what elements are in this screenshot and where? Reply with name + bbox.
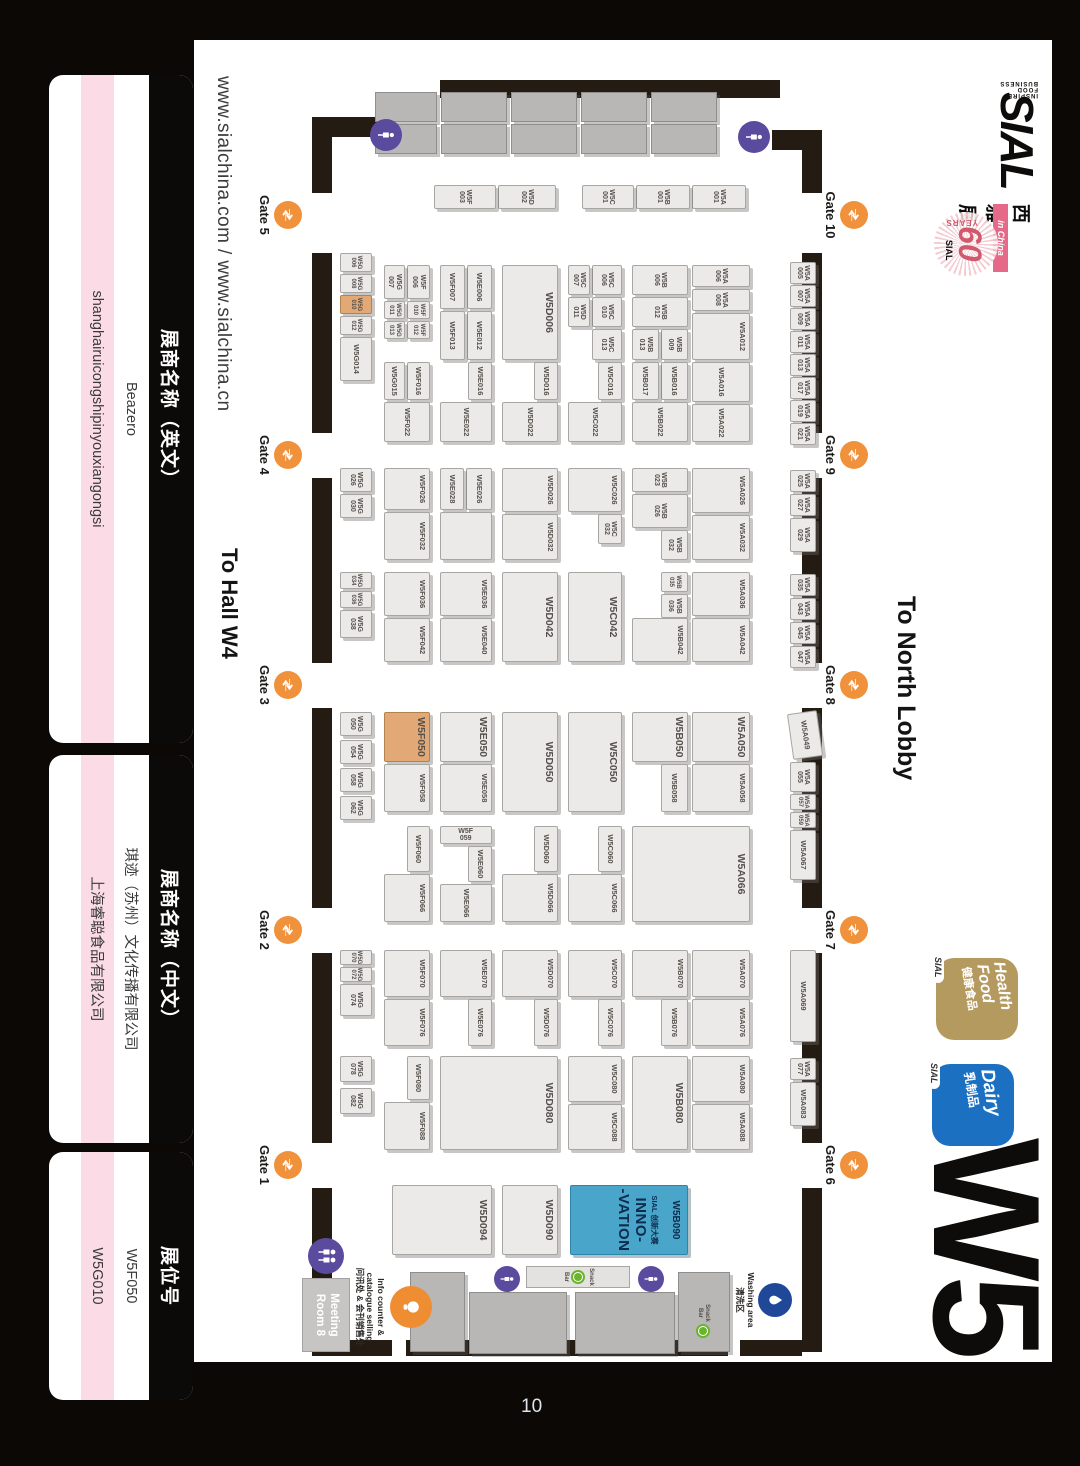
booth-label: W5C 013	[600, 337, 615, 353]
booth-W5D080: W5D080	[440, 1056, 558, 1150]
booth-W5D090: W5D090	[502, 1185, 558, 1255]
gate-label: Gate 9	[822, 420, 838, 490]
booth-W5C006: W5C 006	[592, 265, 622, 295]
toilet-icon	[494, 1266, 520, 1292]
booth-W5A005: W5A 005	[790, 262, 816, 284]
booth-W5F058: W5F058	[384, 764, 430, 812]
booth-label: W5B 013	[638, 337, 653, 353]
booth-W5G013: W5G 013	[384, 321, 405, 339]
booth-label: W5G014	[352, 344, 360, 374]
hall-wall	[312, 953, 332, 1143]
booth-W5F007: W5F007	[440, 265, 465, 309]
booth-W5G006: W5G 006	[340, 253, 372, 272]
booth-label: W5C070	[610, 959, 621, 988]
booth-label: W5G 034	[350, 574, 363, 588]
booth-W5A088: W5A088	[692, 1104, 750, 1150]
booth-label: W5G 058	[349, 772, 364, 788]
gate-swap-icon	[274, 1151, 302, 1179]
booth-label: W5D026	[546, 475, 557, 504]
booth-W5D066: W5D066	[502, 874, 558, 922]
booth-label: W5B017	[642, 366, 650, 395]
booth-label: W5G 007	[387, 274, 402, 290]
booth-W5G050: W5G 050	[340, 712, 372, 736]
booth-label: W5B042	[676, 625, 687, 654]
booth-W5F006: W5F 006	[407, 265, 430, 299]
booth-label: W5A 027	[796, 497, 811, 513]
table-block-name-en: 展商名称（英文） Beazero shanghairuicongshipinyo…	[49, 75, 193, 743]
gate-swap-icon	[274, 201, 302, 229]
booth-label: W5D050	[543, 742, 557, 783]
booth-label: W5C060	[606, 834, 614, 863]
gate-label: Gate 5	[256, 180, 272, 250]
gate-label: Gate 10	[822, 180, 838, 250]
service-block	[651, 124, 717, 154]
booth-label: W5E006	[476, 273, 484, 302]
booth-W5B016: W5B016	[661, 362, 688, 400]
washing-area-label: Washing area 清洗区	[735, 1250, 756, 1350]
hall-wall	[312, 708, 332, 908]
booth-label: W5A070	[738, 959, 749, 988]
booth-label: W5F050	[415, 717, 429, 757]
booth-W5C001: W5C 001	[582, 185, 634, 209]
meeting-room-label: Meeting Room 8	[312, 1279, 340, 1351]
booth-W5G007: W5G 007	[384, 265, 405, 299]
service-block	[375, 92, 437, 122]
booth-label: W5B076	[671, 1008, 679, 1037]
booth-label: W5G 038	[349, 616, 364, 632]
booth-label: W5F 006	[411, 275, 426, 290]
booth-label: W5C088	[610, 1112, 621, 1141]
booth-label: W5D 002	[520, 189, 535, 205]
booth-label: W5F 010	[412, 304, 425, 317]
booth-W5E006: W5E006	[467, 265, 492, 309]
booth-label: W5A 001	[712, 189, 727, 205]
gate-swap-icon	[840, 441, 868, 469]
booth-W5D002: W5D 002	[498, 185, 556, 209]
column-header: 展商名称（中文）	[149, 755, 193, 1143]
booth-W5E060: W5E060	[468, 846, 492, 882]
booth-W5C070: W5C070	[568, 950, 622, 997]
booth-label: W5D070	[546, 959, 557, 988]
booth-label: W5B 026	[653, 503, 668, 519]
booth-W5F070: W5F070	[384, 950, 430, 997]
snack-bar: Snack Bar	[526, 1266, 630, 1288]
booth-label: W5G 074	[349, 992, 364, 1008]
booth-W5A045: W5A 045	[790, 622, 816, 644]
booth-label: W5A026	[738, 476, 749, 505]
booth-label: W5C016	[606, 366, 614, 395]
gate-label: Gate 4	[256, 420, 272, 490]
booth-W5G058: W5G 058	[340, 768, 372, 792]
booth-W5A009: W5A 009	[790, 308, 816, 330]
booth-W5F080: W5F080	[407, 1056, 430, 1100]
booth-label: W5E040	[480, 626, 491, 655]
booth-W5A067: W5A067	[790, 830, 816, 880]
booth-W5F076: W5F076	[384, 999, 430, 1046]
booth-label: W5B 032	[667, 537, 682, 553]
booth-label: W5G 078	[349, 1061, 364, 1077]
booth-W5A049: W5A049	[787, 710, 823, 760]
booth-label: W5B050	[673, 717, 687, 758]
booth-label: W5A067	[799, 840, 807, 869]
booth-W5E058: W5E058	[440, 764, 492, 812]
booth-W5A055: W5A 055	[790, 762, 816, 792]
gate-label: Gate 2	[256, 895, 272, 965]
booth-W5C032: W5C 032	[598, 514, 622, 544]
booth-label: W5E022	[462, 408, 470, 437]
booth-label: W5A 029	[796, 527, 811, 543]
booth-label: W5D032	[546, 522, 557, 551]
hall-wall	[802, 1188, 822, 1352]
booth-W5E040: W5E040	[440, 618, 492, 662]
booth-label: W5E028	[448, 475, 456, 504]
table-row-highlight: shanghairuicongshipinyouxiangongsi	[81, 75, 114, 743]
booth-label: W5B016	[671, 366, 679, 395]
service-block	[581, 92, 647, 122]
booth-W5C022: W5C022	[568, 402, 622, 442]
gate-label: Gate 6	[822, 1130, 838, 1200]
booth-W5A042: W5A042	[692, 618, 750, 662]
toilet-icon	[638, 1266, 664, 1292]
booth-label: W5G 062	[349, 800, 364, 816]
booth-W5F066: W5F066	[384, 874, 430, 922]
booth-W5D042: W5D042	[502, 572, 558, 662]
booth-label: W5C066	[610, 883, 621, 912]
booth-W5F003: W5F 003	[434, 185, 496, 209]
booth-W5A059: W5A 059	[790, 812, 816, 828]
booth-W5G012: W5G 012	[340, 316, 372, 335]
booth-label: W5B 012	[653, 304, 668, 320]
booth-W5C042: W5C042	[568, 572, 622, 662]
booth-label: W5A050	[735, 717, 749, 758]
booth-W5A021: W5A 021	[790, 423, 816, 445]
booth-W5C088: W5C088	[568, 1104, 622, 1150]
booth-W5C080: W5C080	[568, 1056, 622, 1102]
table-row-highlight: 上海睿聪食品有限公司	[81, 755, 114, 1143]
booth-label: W5B 023	[653, 472, 668, 488]
booth-unlabeled	[440, 512, 492, 560]
booth-label: W5G 072	[350, 968, 363, 982]
booth-label: W5A069	[799, 981, 807, 1010]
booth-W5A080: W5A080	[692, 1056, 750, 1102]
booth-W5G034: W5G 034	[340, 572, 372, 589]
booth-W5F060: W5F060	[407, 826, 430, 872]
snack-bar-2: SnackBar	[682, 1296, 724, 1346]
booth-label: W5D076	[542, 1008, 550, 1037]
booth-W5A027: W5A 027	[790, 494, 816, 516]
booth-W5B022: W5B022	[632, 402, 688, 442]
page-number: 10	[521, 1396, 542, 1418]
booth-W5A025: W5A 025	[790, 470, 816, 492]
booth-label: W5E060	[476, 850, 484, 879]
booth-label: W5B022	[656, 407, 664, 436]
hall-wall	[312, 478, 332, 663]
booth-label: W5G 036	[350, 593, 363, 607]
booth-W5G070: W5G 070	[340, 950, 372, 965]
hall-wall	[772, 130, 822, 150]
booth-W5G010: W5G 010	[340, 295, 372, 314]
booth-W5G074: W5G 074	[340, 984, 372, 1016]
booth-W5F042: W5F042	[384, 618, 430, 662]
booth-label: W5A 025	[796, 473, 811, 489]
booth-label: W5F066	[418, 884, 429, 912]
booth-W5A017: W5A 017	[790, 377, 816, 399]
table-row-highlight: W5G010	[81, 1152, 114, 1400]
gate-swap-icon	[840, 201, 868, 229]
booth-label: W5A088	[738, 1112, 749, 1141]
booth-label: W5G 050	[349, 716, 364, 732]
table-block-booth-no: 展位号 W5F050 W5G010	[49, 1152, 193, 1400]
booth-W5A016: W5A016	[692, 362, 750, 402]
booth-W5B023: W5B 023	[632, 468, 688, 492]
booth-W5A070: W5A070	[692, 950, 750, 997]
booth-label: W5C026	[610, 475, 621, 504]
gate-swap-icon	[274, 916, 302, 944]
booth-label: W5F022	[403, 408, 411, 436]
column-header: 展商名称（英文）	[149, 75, 193, 743]
booth-W5C010: W5C 010	[592, 297, 622, 327]
booth-label: W5B 009	[667, 337, 682, 353]
gate-label: Gate 7	[822, 895, 838, 965]
service-block	[441, 124, 507, 154]
booth-label: W5A 059	[797, 813, 810, 826]
booth-W5B012: W5B 012	[632, 297, 688, 327]
booth-label: W5E026	[475, 475, 483, 504]
booth-W5G014: W5G014	[340, 337, 372, 381]
service-block	[651, 92, 717, 122]
booth-label: W5A 007	[796, 288, 811, 304]
service-block	[469, 1292, 567, 1354]
booth-W5G072: W5G 072	[340, 967, 372, 982]
booth-label: W5A 005	[796, 265, 811, 281]
booth-label: W5E050	[477, 717, 491, 757]
booth-label: W5C022	[591, 407, 599, 436]
booth-W5A077: W5A 077	[790, 1058, 816, 1080]
booth-label: W5G 006	[350, 256, 363, 270]
booth-W5A013: W5A 013	[790, 354, 816, 376]
booth-label: W5A 047	[796, 649, 811, 665]
service-block	[511, 92, 577, 122]
booth-label: W5A 019	[796, 403, 811, 419]
hall-wall	[312, 253, 332, 433]
booth-W5A047: W5A 047	[790, 646, 816, 668]
booth-label: W5F076	[418, 1008, 429, 1036]
booth-label: W5A 008	[714, 292, 729, 308]
booth-W5F010: W5F 010	[407, 301, 430, 319]
gate-label: Gate 3	[256, 650, 272, 720]
booth-W5B013: W5B 013	[632, 329, 659, 360]
booth-W5C066: W5C066	[568, 874, 622, 922]
table-row: Beazero	[114, 75, 149, 743]
booth-label: W5C076	[606, 1008, 614, 1037]
booth-W5D060: W5D060	[534, 826, 558, 872]
booth-label: W5C080	[610, 1064, 621, 1093]
info-counter-icon	[390, 1286, 432, 1328]
booth-label: W5A 043	[796, 601, 811, 617]
meeting-room-8: Meeting Room 8	[302, 1278, 350, 1352]
booth-W5A083: W5A083	[790, 1082, 816, 1126]
booth-W5B017: W5B017	[632, 362, 659, 400]
booth-W5E028: W5E028	[440, 468, 464, 510]
booth-W5A008: W5A 008	[692, 289, 750, 311]
booth-W5B032: W5B 032	[661, 530, 688, 560]
booth-W5A043: W5A 043	[790, 598, 816, 620]
booth-label: W5B 036	[667, 598, 682, 614]
booth-label: W5A080	[738, 1064, 749, 1093]
booth-label: W5A 013	[796, 357, 811, 373]
booth-W5A066: W5A066	[632, 826, 750, 922]
booth-label: W5A 017	[796, 380, 811, 396]
booth-label: W5B058	[671, 773, 679, 802]
booth-W5A035: W5A 035	[790, 574, 816, 596]
booth-label: W5G 013	[388, 323, 401, 337]
innovation-brand: SIAL 创新大赛	[649, 1186, 660, 1254]
booth-W5F013: W5F013	[440, 311, 465, 360]
booth-label: W5C 006	[600, 272, 615, 288]
booth-label: W5A012	[738, 322, 749, 351]
booth-W5E012: W5E012	[467, 311, 492, 360]
booth-W5G008: W5G 008	[340, 274, 372, 293]
booth-W5C050: W5C050	[568, 712, 622, 812]
booth-W5C060: W5C060	[598, 826, 622, 872]
booth-label: W5A 055	[796, 769, 811, 785]
booth-W5F022: W5F022	[384, 402, 430, 442]
booth-label: W5F042	[418, 626, 429, 654]
booth-label: W5G 008	[350, 277, 363, 291]
booth-label: W5A 057	[797, 795, 810, 808]
booth-label: W5A 035	[796, 577, 811, 593]
booth-W5D070: W5D070	[502, 950, 558, 997]
booth-label: W5D006	[543, 292, 557, 333]
gate-swap-icon	[274, 671, 302, 699]
booth-W5A029: W5A 029	[790, 518, 816, 552]
booth-W5G062: W5G 062	[340, 796, 372, 820]
booth-label: W5C 032	[603, 521, 618, 537]
booth-W5D011: W5D 011	[568, 297, 590, 327]
booth-label: W5A 021	[796, 426, 811, 442]
booth-W5A057: W5A 057	[790, 794, 816, 810]
booth-label: W5A058	[738, 773, 749, 802]
booth-label: W5B 001	[656, 189, 671, 205]
gate-swap-icon	[274, 441, 302, 469]
booth-W5A076: W5A076	[692, 999, 750, 1046]
booth-label: W5A 009	[796, 311, 811, 327]
booth-label: W5E058	[480, 774, 491, 803]
booth-label: W5G 026	[349, 472, 364, 488]
booth-label: W5A036	[738, 579, 749, 608]
booth-label: W5F070	[418, 959, 429, 987]
booth-label: W5F026	[418, 475, 429, 503]
gate-swap-icon	[840, 916, 868, 944]
gate-label: Gate 8	[822, 650, 838, 720]
booth-W5A026: W5A026	[692, 468, 750, 513]
info-counter-label: Info counter & catalogue selling 问讯处 & 会…	[354, 1242, 386, 1372]
booth-label: W5G 012	[350, 319, 363, 333]
booth-W5B058: W5B058	[661, 764, 688, 812]
booth-W5G036: W5G 036	[340, 591, 372, 608]
booth-W5E076: W5E076	[468, 999, 492, 1046]
booth-label: W5C050	[607, 742, 621, 783]
booth-label: W5C 007	[572, 272, 587, 288]
booth-label: W5F088	[418, 1112, 429, 1140]
booth-W5E016: W5E016	[468, 362, 492, 400]
booth-W5E050: W5E050	[440, 712, 492, 762]
booth-label: W5E016	[476, 367, 484, 396]
booth-W5F036: W5F036	[384, 572, 430, 616]
booth-W5F050: W5F050	[384, 712, 430, 762]
booth-W5B026: W5B 026	[632, 494, 688, 528]
table-row: 琪迹（苏州）文化传播有限公司	[114, 755, 149, 1143]
washing-area-icon	[758, 1283, 792, 1317]
booth-label: W5F032	[418, 522, 429, 550]
booth-label: W5F013	[449, 321, 457, 349]
booth-label: W5D042	[543, 597, 557, 638]
booth-label: W5G 011	[388, 303, 401, 317]
booth-label: W5E012	[476, 321, 484, 350]
booth-W5B036: W5B 036	[661, 594, 688, 618]
booth-label: W5A 011	[796, 334, 811, 350]
booth-W5B001: W5B 001	[636, 185, 690, 209]
booth-label: W5F036	[418, 580, 429, 608]
booth-W5A032: W5A032	[692, 515, 750, 560]
booth-W5C013: W5C 013	[592, 329, 622, 360]
booth-W5A022: W5A022	[692, 404, 750, 442]
booth-label: W5A016	[717, 367, 725, 396]
booth-label: W5D094	[477, 1200, 491, 1241]
booth-label: W5A076	[738, 1008, 749, 1037]
booth-label: W5F060	[415, 835, 423, 863]
booth-label: W5C042	[607, 597, 621, 638]
booth-W5D016: W5D016	[534, 362, 558, 400]
booth-W5D026: W5D026	[502, 468, 558, 512]
booth-label: W5B090	[670, 1186, 681, 1254]
booth-label: W5D 011	[572, 304, 587, 320]
booth-W5G026: W5G 026	[340, 468, 372, 492]
booth-W5F026: W5F026	[384, 468, 430, 510]
booth-label: W5D022	[526, 407, 534, 436]
table-block-name-cn: 展商名称（中文） 琪迹（苏州）文化传播有限公司 上海睿聪食品有限公司	[49, 755, 193, 1143]
booth-label: W5D016	[542, 366, 550, 395]
booth-W5A036: W5A036	[692, 572, 750, 616]
booth-label: W5A 045	[796, 625, 811, 641]
booth-label: W5D060	[542, 834, 550, 863]
booth-W5A001: W5A 001	[692, 185, 746, 209]
booth-W5G078: W5G 078	[340, 1056, 372, 1082]
booth-label: W5B070	[676, 959, 687, 988]
gate-swap-icon	[840, 1151, 868, 1179]
booth-W5A011: W5A 011	[790, 331, 816, 353]
booth-label: W5A032	[738, 523, 749, 552]
booth-W5G011: W5G 011	[384, 301, 405, 319]
booth-W5G082: W5G 082	[340, 1088, 372, 1114]
booth-label: W5G 030	[349, 498, 364, 514]
booth-W5D094: W5D094	[392, 1185, 492, 1255]
booth-W5A007: W5A 007	[790, 285, 816, 307]
booth-label: W5F016	[415, 367, 423, 395]
booth-W5E026: W5E026	[466, 468, 492, 510]
booth-W5E066: W5E066	[440, 884, 492, 922]
column-header: 展位号	[149, 1152, 193, 1400]
booth-label: W5E070	[480, 959, 491, 988]
booth-label: W5A022	[717, 408, 725, 437]
booth-label: W5B 006	[653, 272, 668, 288]
booth-W5C007: W5C 007	[568, 265, 590, 295]
booth-W5B006: W5B 006	[632, 265, 688, 295]
service-block	[511, 124, 577, 154]
catalog-page: INSPIRE FOOD BUSINESS SIAL 西雅展 in China …	[0, 0, 1080, 1466]
booth-W5B035: W5B 035	[661, 572, 688, 592]
booth-label: W5A 077	[796, 1061, 811, 1077]
